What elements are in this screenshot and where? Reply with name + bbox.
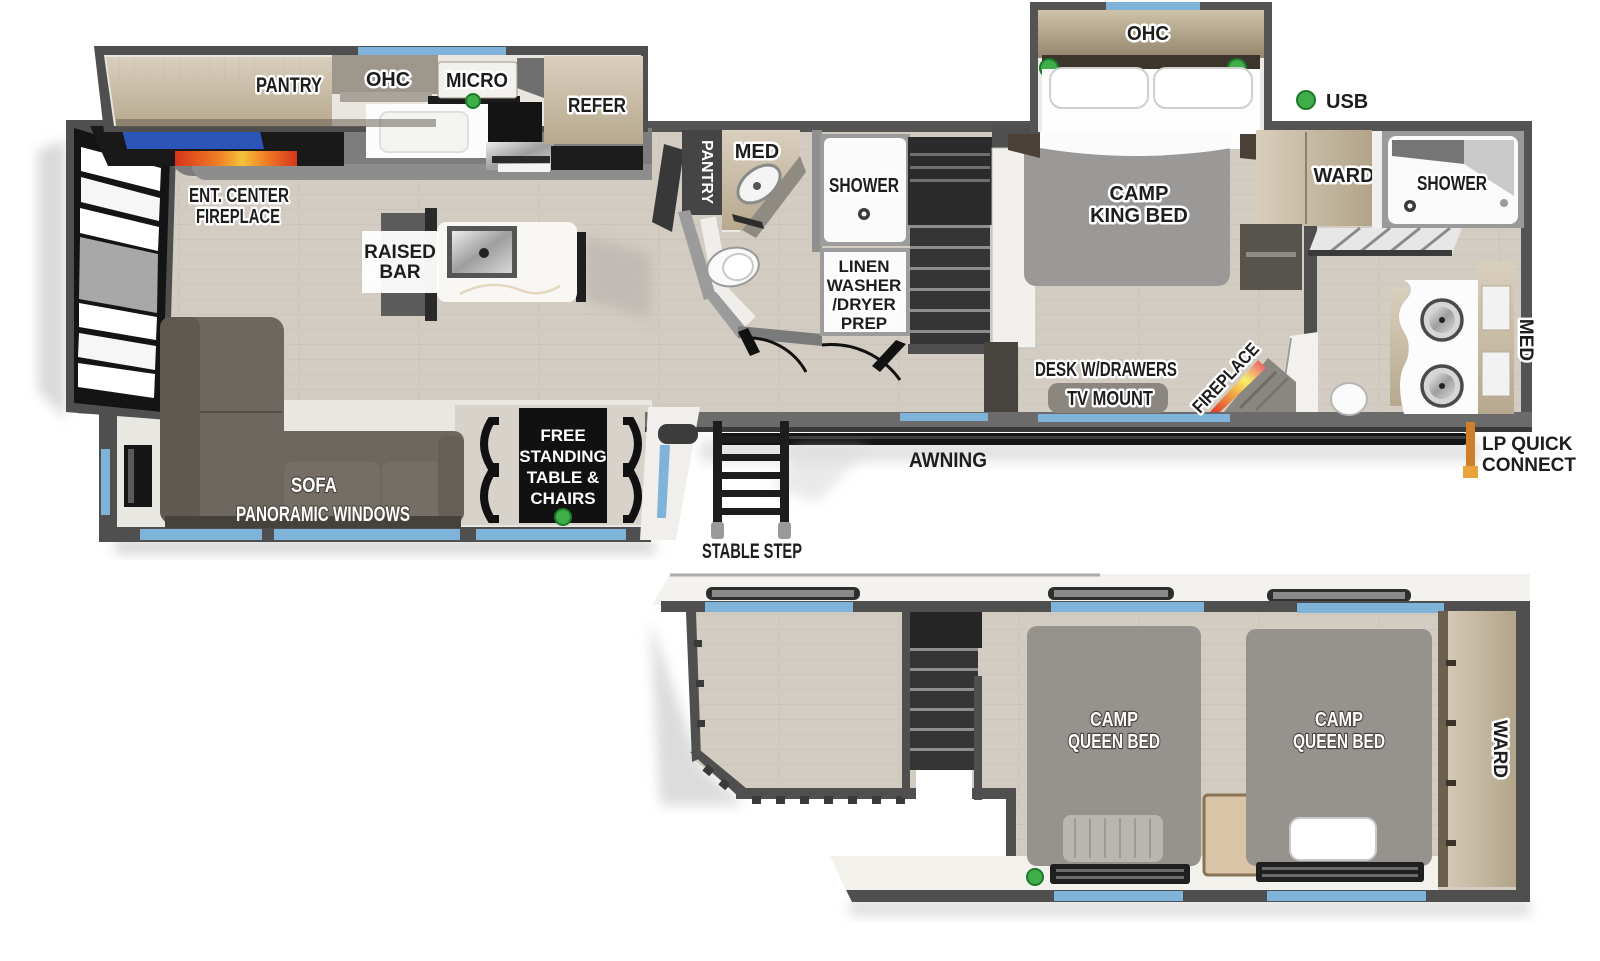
svg-text:PANTRY: PANTRY bbox=[256, 74, 322, 97]
svg-text:MED: MED bbox=[1515, 319, 1536, 361]
svg-text:DESK W/DRAWERS: DESK W/DRAWERS bbox=[1035, 359, 1177, 381]
svg-text:CAMP: CAMP bbox=[1315, 709, 1363, 731]
svg-text:PANORAMIC WINDOWS: PANORAMIC WINDOWS bbox=[236, 503, 410, 526]
svg-text:KING BED: KING BED bbox=[1090, 205, 1188, 227]
svg-text:RAISED: RAISED bbox=[364, 242, 436, 263]
svg-text:ENT. CENTER: ENT. CENTER bbox=[189, 185, 289, 207]
svg-text:WARD: WARD bbox=[1489, 720, 1510, 778]
svg-text:STABLE STEP: STABLE STEP bbox=[702, 540, 802, 563]
svg-text:PANTRY: PANTRY bbox=[698, 140, 715, 204]
svg-text:CONNECT: CONNECT bbox=[1482, 455, 1576, 476]
svg-text:CAMP: CAMP bbox=[1090, 709, 1138, 731]
svg-text:MED: MED bbox=[735, 141, 779, 163]
svg-text:REFER: REFER bbox=[568, 95, 626, 117]
svg-text:OHC: OHC bbox=[1127, 23, 1169, 45]
svg-text:LP QUICK: LP QUICK bbox=[1482, 434, 1573, 455]
svg-text:FIREPLACE: FIREPLACE bbox=[196, 206, 280, 228]
svg-text:AWNING: AWNING bbox=[909, 449, 987, 472]
svg-text:PREP: PREP bbox=[841, 314, 887, 333]
svg-text:USB: USB bbox=[1326, 91, 1368, 113]
svg-text:WASHER: WASHER bbox=[827, 276, 902, 295]
svg-text:CAMP: CAMP bbox=[1110, 183, 1169, 205]
svg-text:FREE: FREE bbox=[540, 426, 585, 445]
svg-text:BAR: BAR bbox=[379, 262, 420, 283]
svg-text:OHC: OHC bbox=[366, 69, 410, 91]
svg-text:MICRO: MICRO bbox=[446, 70, 508, 92]
svg-text:SHOWER: SHOWER bbox=[1417, 173, 1487, 195]
svg-text:TV MOUNT: TV MOUNT bbox=[1067, 388, 1153, 410]
svg-text:QUEEN BED: QUEEN BED bbox=[1293, 731, 1385, 753]
svg-text:CHAIRS: CHAIRS bbox=[530, 489, 595, 508]
svg-text:TABLE &: TABLE & bbox=[527, 468, 599, 487]
svg-text:QUEEN BED: QUEEN BED bbox=[1068, 731, 1160, 753]
svg-text:SHOWER: SHOWER bbox=[829, 175, 899, 197]
svg-text:SOFA: SOFA bbox=[291, 474, 337, 497]
svg-text:STANDING: STANDING bbox=[519, 447, 607, 466]
svg-text:WARD: WARD bbox=[1313, 165, 1374, 187]
svg-text:/DRYER: /DRYER bbox=[832, 295, 896, 314]
svg-text:LINEN: LINEN bbox=[839, 257, 890, 276]
